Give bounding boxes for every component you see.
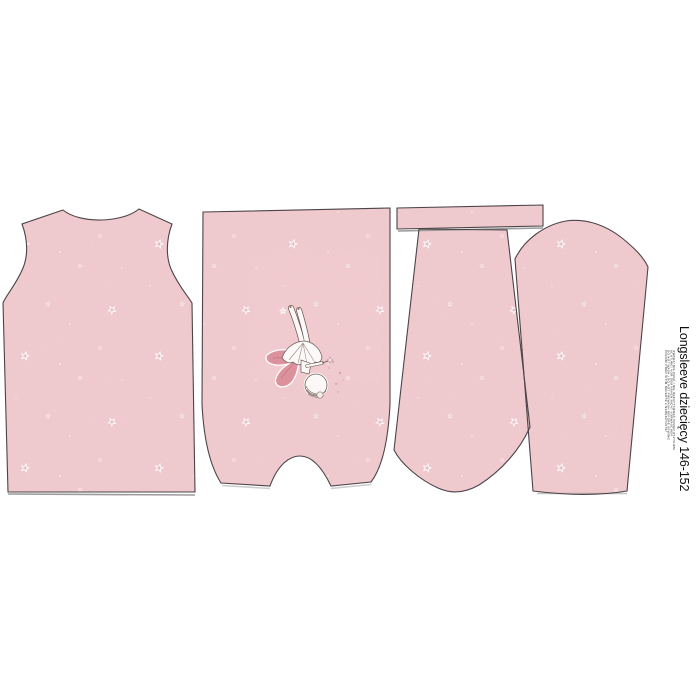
fabric-layer <box>0 0 700 700</box>
panel-title: Longsleeve dziecięcy 146-152 <box>677 326 691 491</box>
care-notes: UWAGA! NIE PRAĆ / NIE DEKATYZOWAĆ PRZED … <box>664 350 675 450</box>
pattern-pieces-svg <box>0 0 700 700</box>
fabric-panel-sheet: Longsleeve dziecięcy 146-152 UWAGA! NIE … <box>0 0 700 700</box>
